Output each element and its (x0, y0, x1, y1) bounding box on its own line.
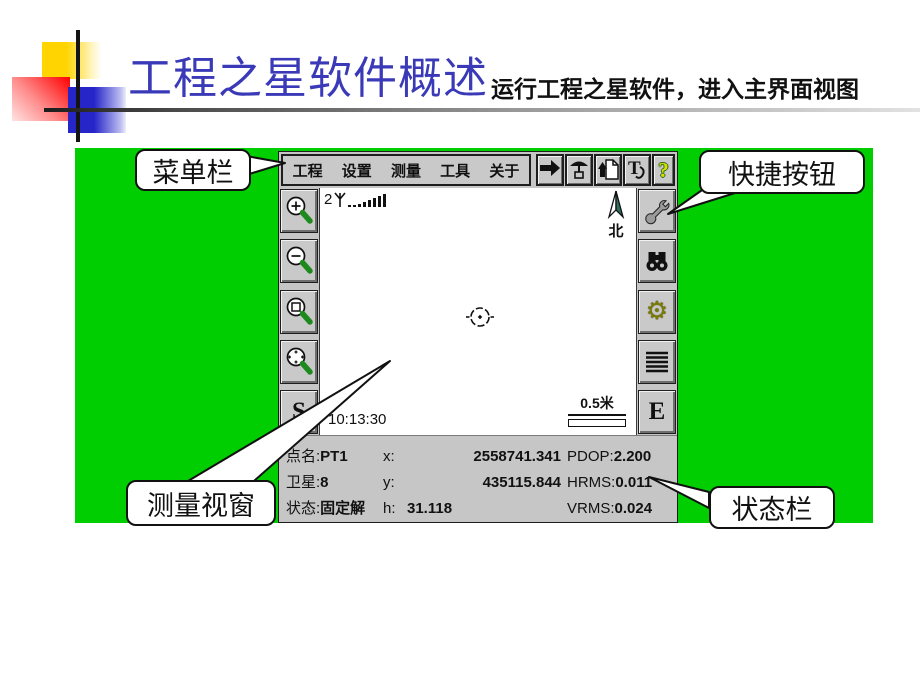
base-station-button[interactable] (565, 154, 593, 186)
gear-icon: ⚙ (646, 299, 668, 324)
north-arrow-icon (605, 190, 627, 220)
callout-quick-buttons: 快捷按钮 (699, 150, 865, 194)
page-subtitle: 运行工程之星软件，进入主界面视图 (491, 70, 859, 104)
satellite-label: 卫星: (286, 470, 320, 496)
decor-yellow-square (42, 42, 102, 79)
menu-item-project[interactable]: 工程 (293, 160, 323, 181)
config-gear-button[interactable]: ⚙ (638, 290, 676, 334)
time-display: 10:13:30 (328, 411, 386, 428)
menu-item-tools[interactable]: 工具 (440, 160, 470, 181)
scale-label: 0.5米 (568, 393, 626, 416)
s-mode-button[interactable]: S (280, 390, 318, 434)
solution-state-label: 状态: (286, 496, 320, 522)
pan-center-button[interactable] (280, 340, 318, 384)
text-annotate-button[interactable]: T (623, 154, 651, 186)
point-name-label: 点名: (286, 444, 320, 470)
file-upload-icon (596, 156, 620, 185)
hrms-label: HRMS: (567, 470, 615, 496)
software-screenshot: 工程 设置 测量 工具 关于 (278, 151, 678, 523)
zoom-in-button[interactable] (280, 189, 318, 233)
signal-count-label: 2 (324, 191, 332, 208)
x-value: 2558741.341 (403, 444, 561, 470)
pdop-label: PDOP: (567, 444, 614, 470)
zoom-window-button[interactable] (280, 290, 318, 334)
vrms-label: VRMS: (567, 496, 615, 522)
callout-measure-window-label: 测量视窗 (147, 484, 255, 523)
zoom-out-icon (284, 245, 314, 277)
wrench-icon (643, 197, 671, 225)
zoom-out-button[interactable] (280, 239, 318, 283)
find-binoculars-button[interactable] (638, 239, 676, 283)
zoom-window-icon (284, 296, 314, 328)
current-position-marker (466, 303, 494, 336)
text-annotate-icon: T (625, 156, 649, 185)
menu-item-about[interactable]: 关于 (489, 160, 519, 181)
point-name-value: PT1 (320, 444, 348, 470)
decor-vertical-line (76, 30, 80, 142)
file-upload-button[interactable] (594, 154, 622, 186)
y-label: y: (383, 470, 403, 496)
status-col-precision: PDOP:2.200 HRMS:0.011 VRMS:0.024 (567, 444, 652, 522)
x-label: x: (383, 444, 403, 470)
list-lines-icon (644, 350, 670, 374)
menu-item-measure[interactable]: 测量 (391, 160, 421, 181)
y-value: 435115.844 (403, 470, 561, 496)
satellite-value: 8 (320, 470, 328, 496)
decor-red-square (12, 77, 70, 121)
pan-center-icon (284, 346, 314, 378)
binoculars-icon (643, 248, 671, 274)
signal-bars-icon (348, 191, 394, 209)
callout-quick-buttons-label: 快捷按钮 (728, 153, 836, 192)
status-col-coords: x:2558741.341 y:435115.844 h:31.118 (383, 444, 565, 522)
status-col-point: 点名:PT1 卫星:8 状态:固定解 (286, 444, 365, 522)
satellite-signal-indicator: 2 (324, 191, 394, 209)
s-letter-label: S (292, 398, 306, 426)
base-station-icon (567, 156, 591, 185)
zoom-in-icon (284, 195, 314, 227)
main-row: S 2 (279, 188, 677, 435)
menu-box: 工程 设置 测量 工具 关于 (281, 154, 531, 186)
e-letter-label: E (649, 398, 666, 426)
right-toolbar: ⚙ E (637, 188, 677, 435)
left-toolbar: S (279, 188, 319, 435)
e-mode-button[interactable]: E (638, 390, 676, 434)
arrow-right-icon (538, 157, 562, 184)
antenna-icon (333, 191, 347, 209)
status-bar: 点名:PT1 卫星:8 状态:固定解 x:2558741.341 y:43511… (279, 435, 677, 522)
scale-bar (568, 419, 626, 427)
solution-state-value: 固定解 (320, 496, 365, 522)
h-value: 31.118 (403, 496, 565, 522)
callout-status-bar: 状态栏 (709, 486, 835, 529)
page-title: 工程之星软件概述 (128, 42, 488, 106)
map-scale: 0.5米 (568, 393, 626, 427)
vrms-value: 0.024 (615, 496, 653, 522)
tools-wrench-button[interactable] (638, 189, 676, 233)
callout-status-bar-label: 状态栏 (732, 488, 813, 527)
menu-bar: 工程 设置 测量 工具 关于 (281, 154, 675, 186)
callout-menu-bar-label: 菜单栏 (153, 151, 234, 190)
menu-item-settings[interactable]: 设置 (342, 160, 372, 181)
pdop-value: 2.200 (614, 444, 652, 470)
callout-measure-window: 测量视窗 (126, 480, 276, 526)
help-question-icon: ? (658, 160, 669, 181)
quick-button-bar: T ? (536, 154, 675, 186)
list-lines-button[interactable] (638, 340, 676, 384)
svg-text:T: T (628, 158, 641, 179)
h-label: h: (383, 496, 403, 522)
hrms-value: 0.011 (615, 470, 652, 496)
north-compass: 北 (602, 190, 630, 239)
measure-view-canvas[interactable]: 2 (319, 188, 637, 435)
callout-menu-bar: 菜单栏 (135, 149, 251, 191)
help-button[interactable]: ? (652, 154, 675, 186)
north-label: 北 (602, 225, 630, 239)
title-underline-rule (44, 108, 920, 112)
next-step-button[interactable] (536, 154, 564, 186)
